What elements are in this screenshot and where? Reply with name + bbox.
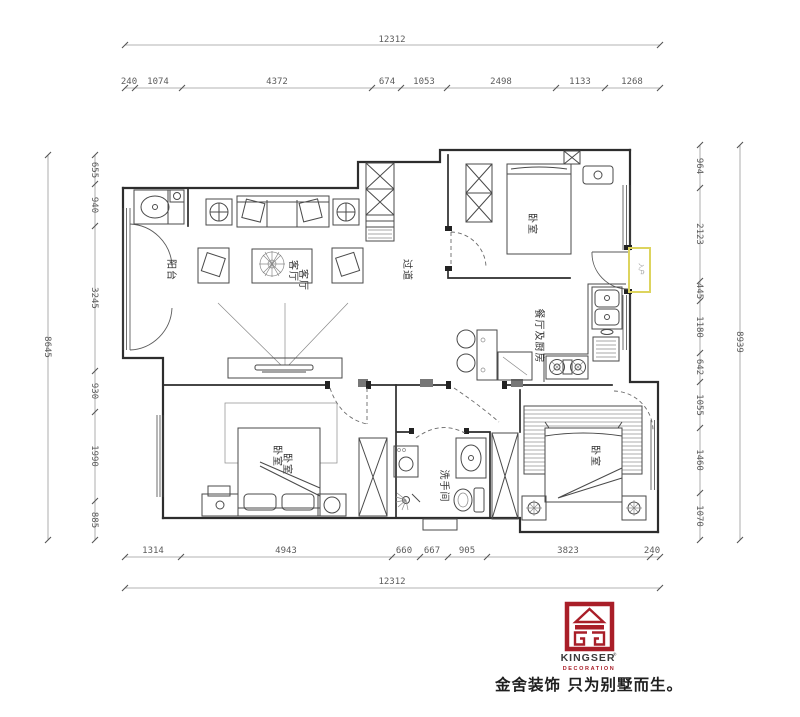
entry-label: 入户	[637, 263, 645, 275]
logo-bar-icon	[575, 625, 604, 630]
dim-bottom-0: 1314	[142, 546, 164, 556]
dim-top-total-text: 12312	[378, 35, 405, 45]
bedroom-left-label-2: 卧室	[281, 453, 294, 475]
dim-bottom-1: 4943	[275, 546, 297, 556]
logo-brand-text: KINGSER	[561, 652, 616, 664]
dim-top-2: 4372	[266, 77, 288, 87]
dim-right-4: 642	[694, 359, 704, 375]
dim-right-6: 1460	[694, 449, 704, 471]
dim-left-2: 3245	[89, 287, 99, 309]
dim-top-5: 2498	[490, 77, 512, 87]
canvas-background	[0, 0, 800, 717]
dim-right-1: 2123	[694, 223, 704, 245]
dim-bottom-6: 240	[644, 546, 660, 556]
floorplan-drawing: 12312 240 1074 4372 674 1053 2498 1133 1…	[0, 0, 800, 717]
dim-top-1: 1074	[147, 77, 169, 87]
tv	[255, 365, 313, 370]
dim-bottom-3: 667	[424, 546, 440, 556]
bed	[545, 428, 622, 502]
dim-top-7: 1268	[621, 77, 643, 87]
dim-bottom-5: 3823	[557, 546, 579, 556]
dim-right-0: 964	[694, 158, 704, 174]
dim-right-total-text: 8939	[734, 331, 744, 353]
bathroom-label: 洗手间	[438, 470, 451, 503]
dim-top-0: 240	[121, 77, 137, 87]
logo-tagline: 金舍装饰 只为别墅而生。	[494, 675, 683, 694]
dim-left-0: 655	[89, 162, 99, 178]
dim-left-5: 885	[89, 512, 99, 528]
dim-bottom-total-text: 12312	[378, 577, 405, 587]
dim-left-4: 1990	[89, 445, 99, 467]
dim-top-4: 1053	[413, 77, 435, 87]
dim-top-3: 674	[379, 77, 395, 87]
balcony-label: 阳台	[165, 259, 178, 281]
dim-right-5: 1055	[694, 394, 704, 416]
logo-sub-text: DECORATION	[563, 666, 616, 672]
floorplan-page: 12312 240 1074 4372 674 1053 2498 1133 1…	[0, 0, 800, 717]
dim-left-total-text: 8645	[42, 336, 52, 358]
bed	[238, 428, 320, 516]
dim-right-2: 445	[694, 283, 704, 299]
bedroom-top-label: 卧室	[526, 213, 539, 235]
dim-bottom-2: 660	[396, 546, 412, 556]
dim-top-6: 1133	[569, 77, 591, 87]
dim-left-3: 930	[89, 383, 99, 399]
dim-bottom-4: 905	[459, 546, 475, 556]
living-room-label-2: 客厅	[297, 269, 310, 291]
dim-right-3: 1180	[694, 316, 704, 338]
dim-right-7: 1070	[694, 505, 704, 527]
dim-left-1: 940	[89, 197, 99, 213]
bedroom-right-label: 卧室	[589, 445, 602, 467]
hallway-label: 过道	[401, 259, 414, 281]
kitchen-dining-label: 餐厅及厨房	[533, 309, 546, 364]
